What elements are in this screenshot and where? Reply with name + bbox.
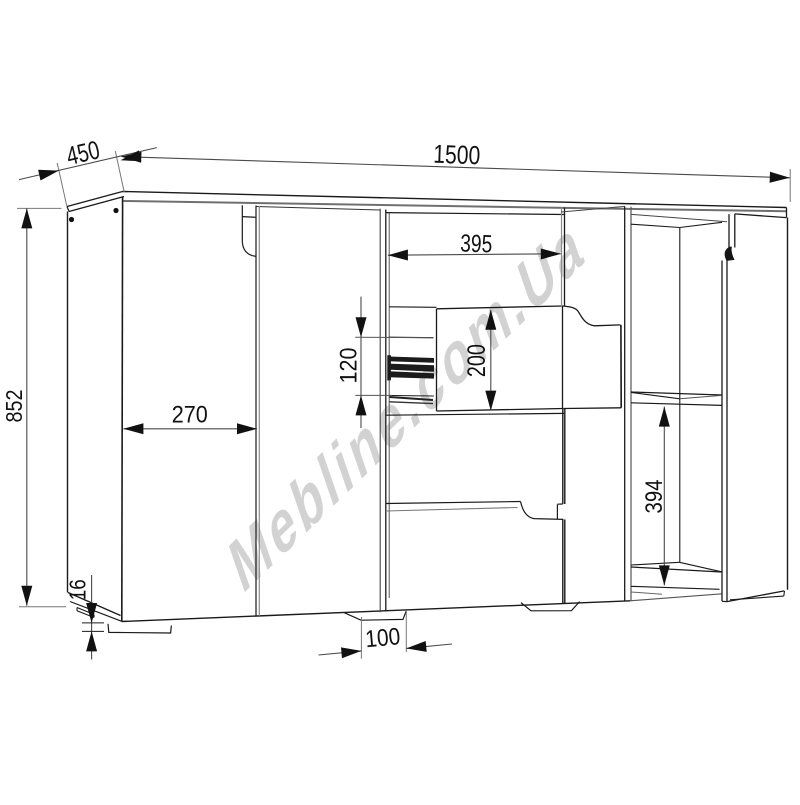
svg-text:1500: 1500 [433, 139, 481, 171]
svg-text:852: 852 [1, 390, 27, 423]
svg-text:100: 100 [364, 623, 401, 653]
svg-text:200: 200 [463, 344, 491, 377]
svg-text:16: 16 [65, 579, 91, 600]
svg-text:120: 120 [335, 348, 362, 384]
svg-text:270: 270 [172, 402, 208, 429]
svg-text:394: 394 [641, 480, 668, 514]
svg-text:395: 395 [460, 229, 493, 258]
